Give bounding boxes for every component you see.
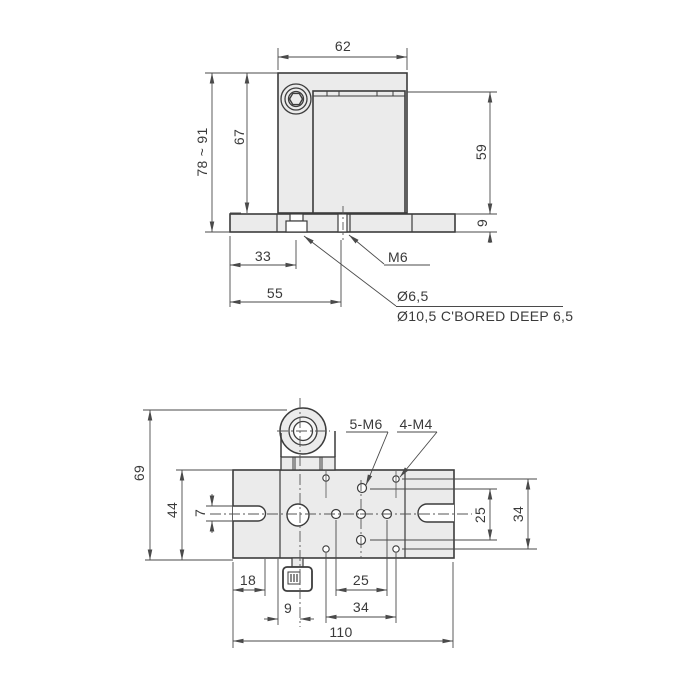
dim-front-hole-offset-1: 33 bbox=[233, 248, 293, 264]
dim-plan-pitch-25-right: 25 bbox=[472, 480, 488, 550]
center-bore bbox=[287, 504, 309, 526]
dim-plan-pitch-25-bottom: 25 bbox=[331, 572, 391, 588]
dim-plan-slot-offset: 18 bbox=[218, 572, 278, 588]
dim-front-height-range: 78 ~ 91 bbox=[194, 117, 210, 187]
sensor-symbol bbox=[283, 558, 312, 591]
dim-front-height-body: 67 bbox=[231, 102, 247, 172]
cylinder-body bbox=[313, 91, 405, 213]
drawing-canvas: 62 78 ~ 91 67 59 9 33 55 M6 Ø6,5 Ø10,5 C… bbox=[0, 0, 700, 700]
technical-drawing bbox=[0, 0, 700, 700]
dim-plan-body-height: 44 bbox=[164, 475, 180, 545]
dim-front-height-right: 59 bbox=[473, 117, 489, 187]
dim-plan-total-width: 110 bbox=[311, 624, 371, 640]
label-m6-thread: M6 bbox=[368, 249, 428, 265]
right-slot bbox=[418, 504, 454, 522]
dim-plan-pitch-34-bottom: 34 bbox=[331, 599, 391, 615]
front-view bbox=[205, 48, 563, 307]
label-through-hole: Ø6,5 bbox=[397, 288, 477, 304]
label-counterbore: Ø10,5 C'BORED DEEP 6,5 bbox=[397, 308, 577, 324]
left-slot bbox=[233, 506, 266, 521]
dim-plan-slot-width: 7 bbox=[192, 478, 208, 548]
dim-front-width: 62 bbox=[313, 38, 373, 54]
dim-front-hole-offset-2: 55 bbox=[245, 285, 305, 301]
label-4-m4: 4-M4 bbox=[386, 416, 446, 432]
dim-front-base-thickness: 9 bbox=[474, 188, 490, 258]
dim-plan-pitch-34-right: 34 bbox=[510, 479, 526, 549]
pivot-boss bbox=[280, 408, 335, 470]
dim-plan-center-offset: 9 bbox=[258, 600, 318, 616]
dim-plan-total-height: 69 bbox=[131, 438, 147, 508]
